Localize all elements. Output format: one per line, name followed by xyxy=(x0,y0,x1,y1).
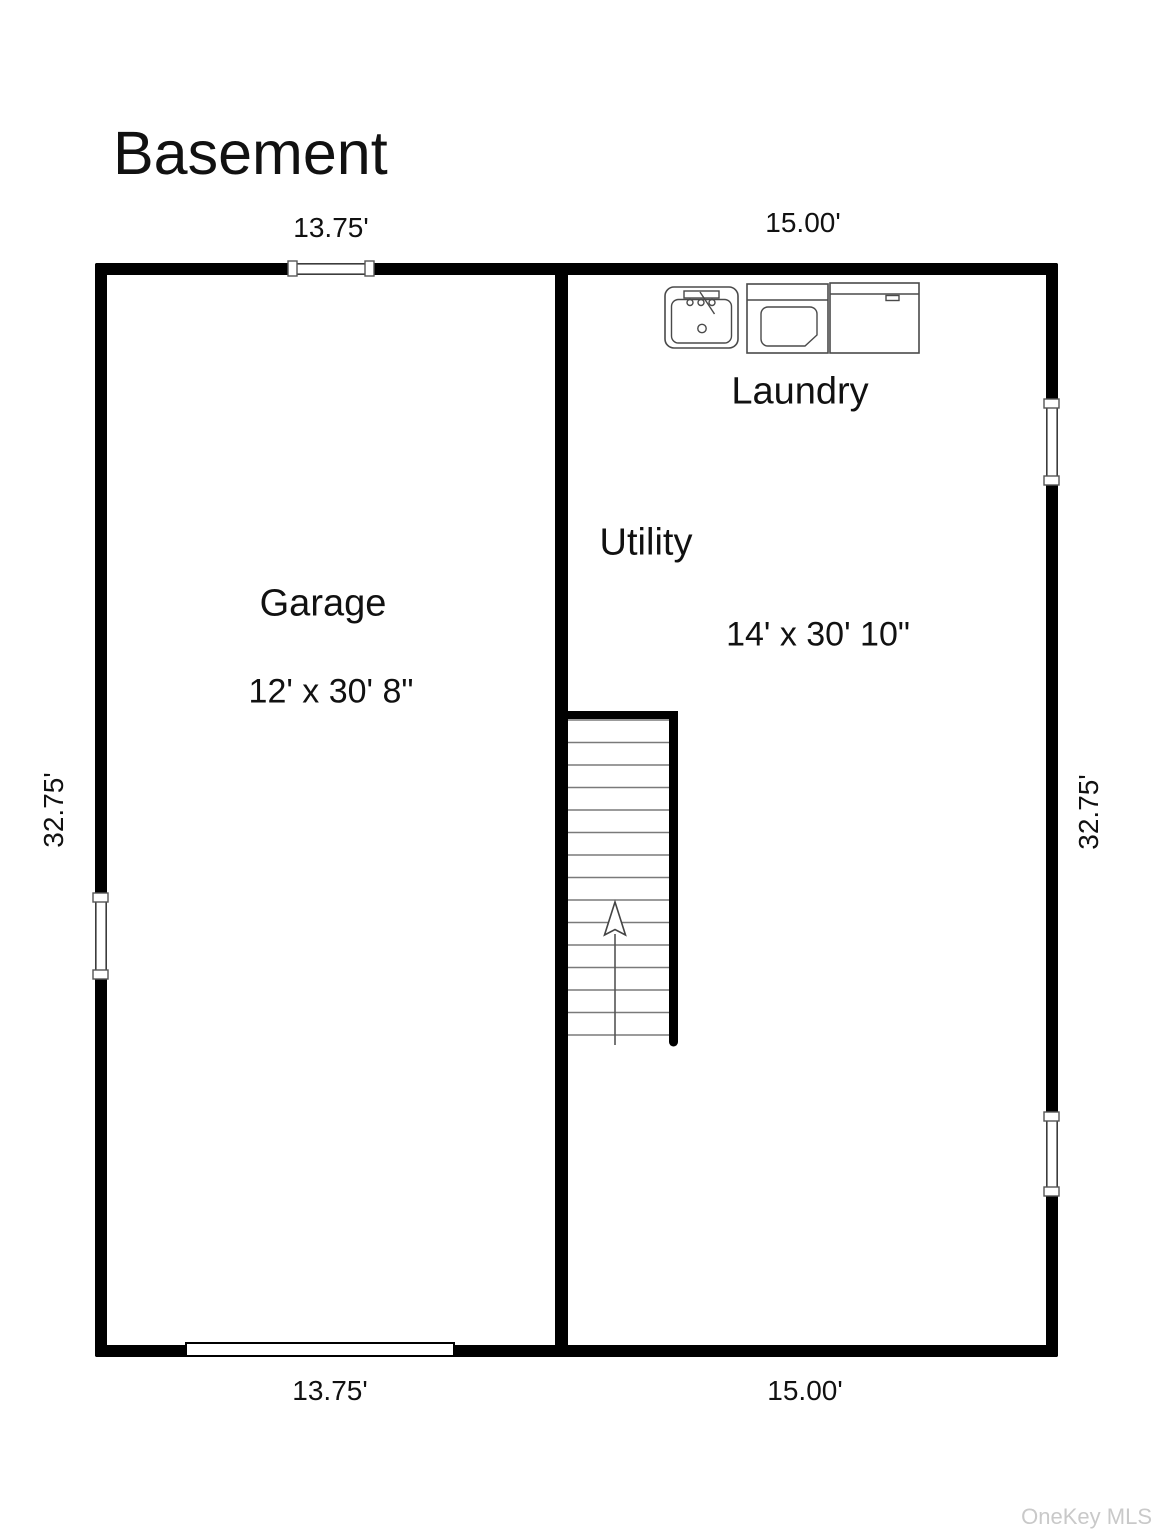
stair-treads xyxy=(568,720,669,1035)
room-label-laundry: Laundry xyxy=(731,371,868,414)
sink-icon xyxy=(665,287,738,348)
laundry-fixtures xyxy=(665,283,919,353)
dryer-icon xyxy=(830,283,919,353)
wall-top xyxy=(95,263,1058,275)
wall-left xyxy=(95,263,107,1357)
room-label-garage: Garage xyxy=(260,583,387,626)
dimension-side-left: 32.75' xyxy=(38,772,70,847)
room-size-utility: 14' x 30' 10" xyxy=(726,616,910,655)
dimension-top-right: 15.00' xyxy=(765,207,840,239)
stair-top-wall xyxy=(568,711,678,719)
washer-icon xyxy=(747,284,828,353)
up-arrow-icon xyxy=(605,902,626,1045)
dimension-side-right: 32.75' xyxy=(1073,774,1105,849)
garage-door xyxy=(186,1343,454,1356)
dimension-bottom-right: 15.00' xyxy=(767,1375,842,1407)
floorplan-page: { "title": "Basement", "watermark": "One… xyxy=(0,0,1152,1536)
page-title: Basement xyxy=(113,118,388,188)
dimension-top-left: 13.75' xyxy=(293,212,368,244)
wall-center xyxy=(555,263,568,1357)
dimension-bottom-left: 13.75' xyxy=(292,1375,367,1407)
room-size-garage: 12' x 30' 8" xyxy=(249,673,414,712)
watermark: OneKey MLS xyxy=(1021,1504,1152,1530)
stairs xyxy=(568,711,678,1045)
room-label-utility: Utility xyxy=(600,522,693,565)
floorplan-drawing xyxy=(0,0,1152,1536)
windows xyxy=(93,261,1059,1356)
